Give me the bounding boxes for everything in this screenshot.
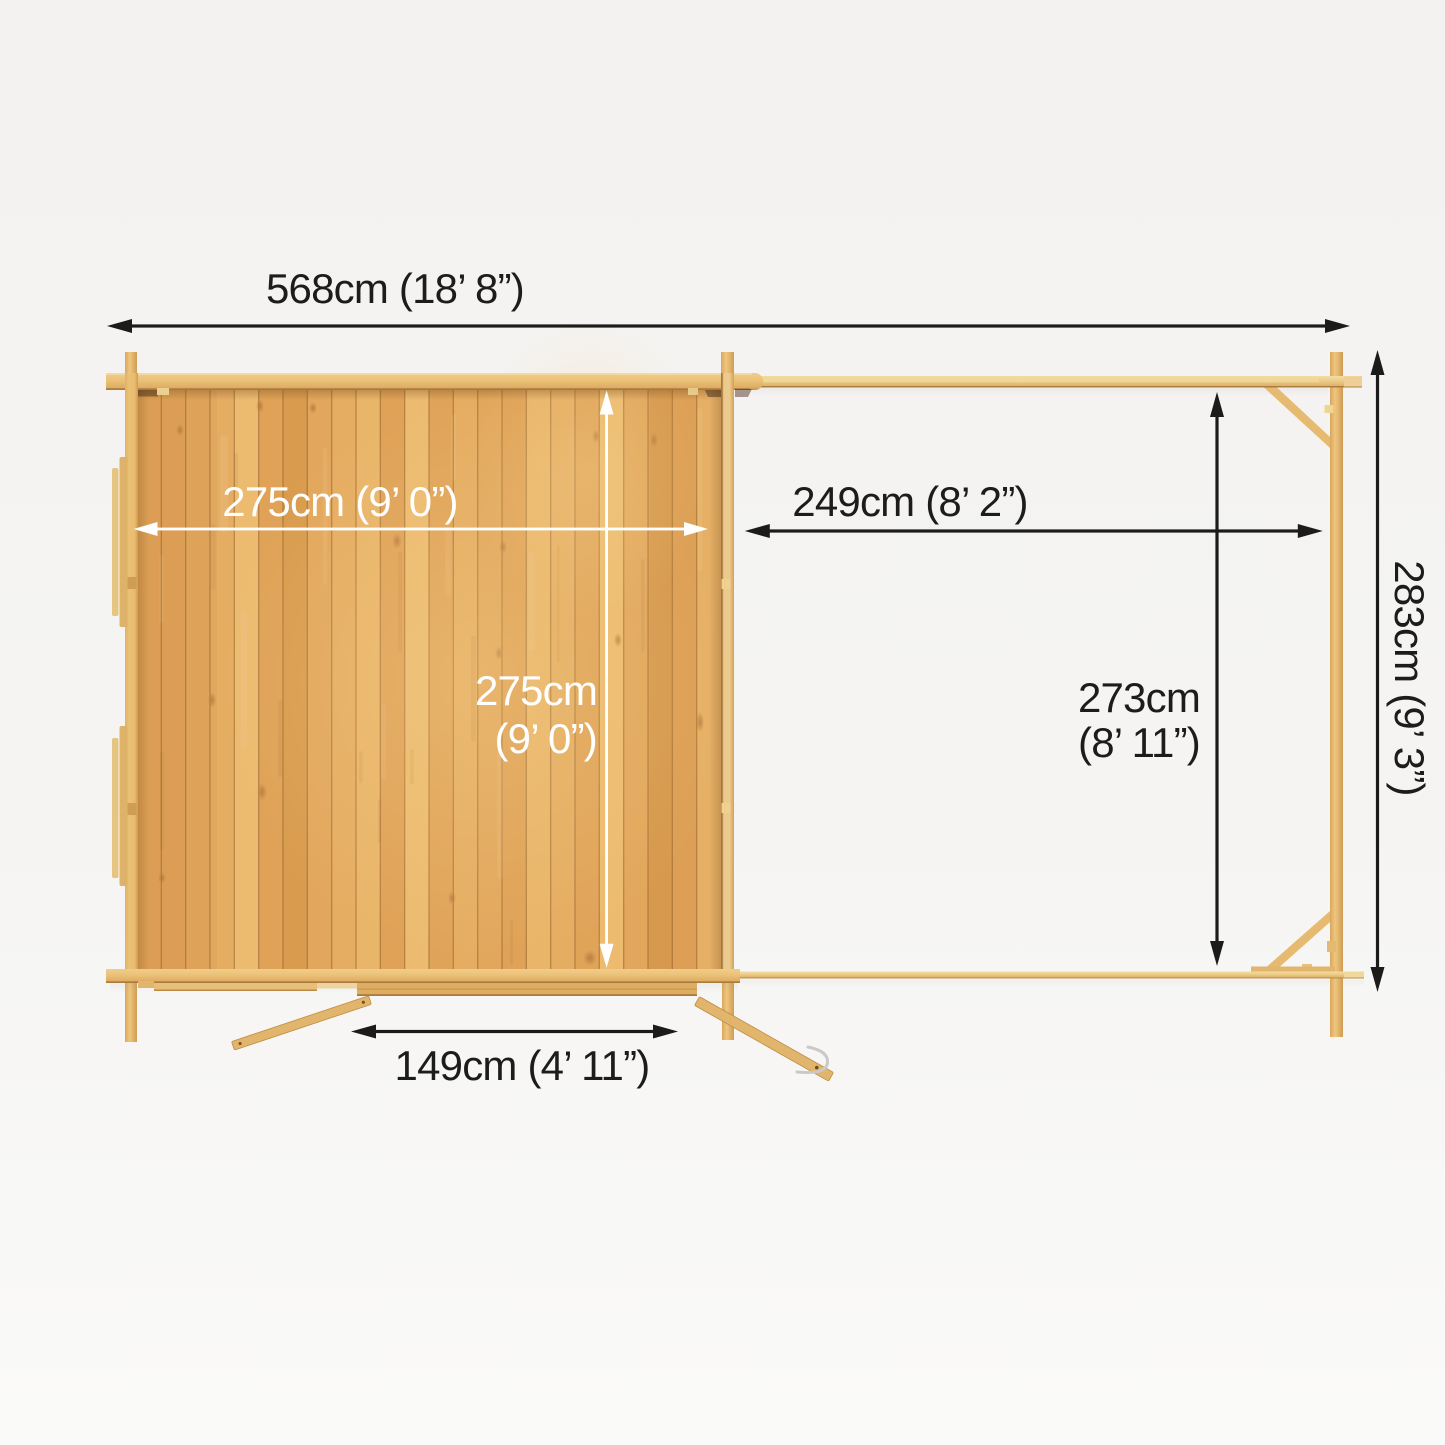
svg-text:273cm: 273cm bbox=[1078, 674, 1200, 721]
svg-text:149cm (4’ 11”): 149cm (4’ 11”) bbox=[395, 1042, 650, 1089]
svg-text:(9’ 0”): (9’ 0”) bbox=[494, 715, 597, 762]
svg-text:275cm (9’ 0”): 275cm (9’ 0”) bbox=[222, 478, 457, 525]
svg-text:275cm: 275cm bbox=[475, 667, 597, 714]
svg-text:283cm (9’ 3”): 283cm (9’ 3”) bbox=[1386, 560, 1433, 795]
svg-text:249cm (8’ 2”): 249cm (8’ 2”) bbox=[792, 478, 1027, 525]
svg-text:568cm (18’ 8”): 568cm (18’ 8”) bbox=[266, 265, 524, 312]
svg-text:(8’ 11”): (8’ 11”) bbox=[1078, 719, 1200, 766]
